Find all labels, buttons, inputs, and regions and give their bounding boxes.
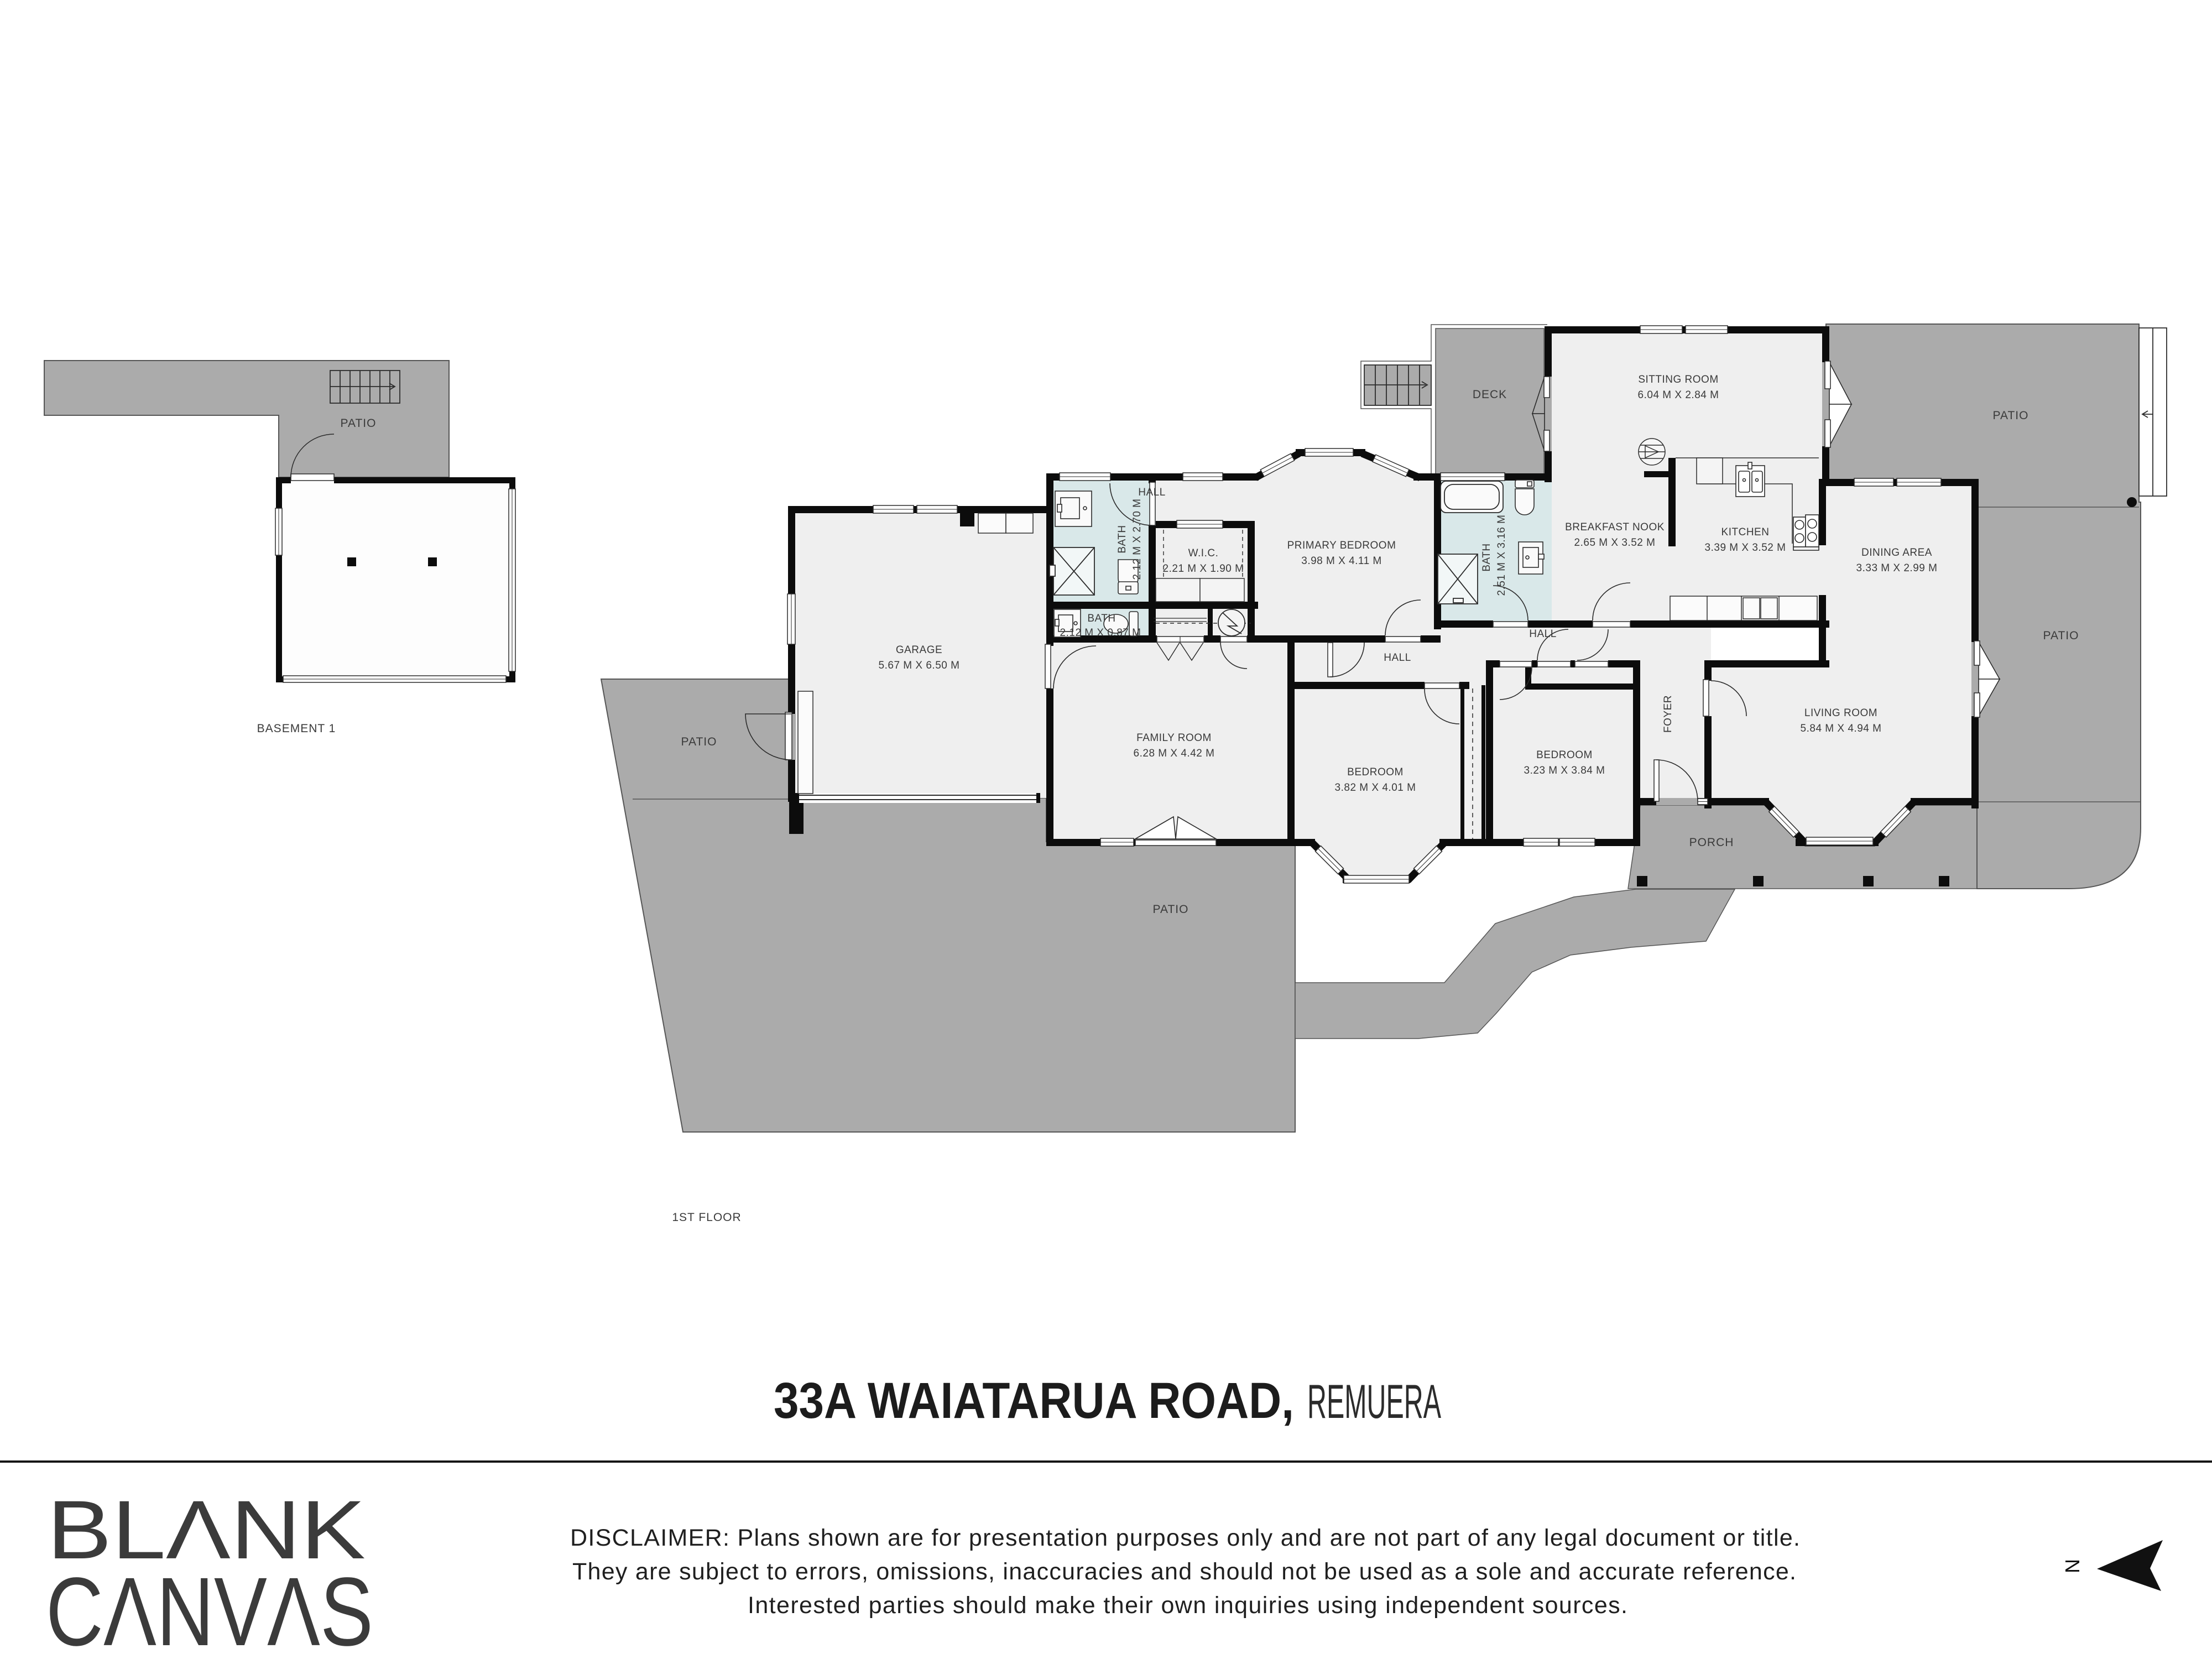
svg-text:CΛNVΛS: CΛNVΛS: [46, 1558, 373, 1659]
svg-text:BATH: BATH: [1481, 543, 1493, 571]
svg-text:2.21 M X 1.90 M: 2.21 M X 1.90 M: [1163, 563, 1244, 575]
svg-text:5.67 M X 6.50 M: 5.67 M X 6.50 M: [879, 660, 960, 671]
svg-text:LIVING ROOM: LIVING ROOM: [1804, 707, 1877, 719]
svg-text:6.04 M X 2.84 M: 6.04 M X 2.84 M: [1638, 389, 1719, 401]
svg-text:BEDROOM: BEDROOM: [1347, 766, 1404, 778]
svg-text:REMUERA: REMUERA: [1307, 1375, 1441, 1428]
svg-text:BASEMENT 1: BASEMENT 1: [257, 722, 336, 735]
svg-text:3.33 M X 2.99 M: 3.33 M X 2.99 M: [1856, 562, 1938, 574]
svg-text:They are subject to errors, om: They are subject to errors, omissions, i…: [572, 1558, 1796, 1585]
svg-text:PATIO: PATIO: [1153, 903, 1189, 916]
svg-text:PATIO: PATIO: [2043, 629, 2079, 642]
svg-text:FAMILY ROOM: FAMILY ROOM: [1136, 732, 1212, 744]
svg-text:HALL: HALL: [1138, 487, 1166, 498]
svg-text:BEDROOM: BEDROOM: [1536, 749, 1593, 761]
svg-text:2.65 M X 3.52 M: 2.65 M X 3.52 M: [1574, 537, 1656, 549]
svg-text:33A WAIATARUA ROAD,: 33A WAIATARUA ROAD,: [774, 1373, 1294, 1429]
svg-text:HALL: HALL: [1384, 652, 1411, 664]
svg-text:5.84 M X 4.94 M: 5.84 M X 4.94 M: [1801, 723, 1882, 734]
svg-text:3.82 M X 4.01 M: 3.82 M X 4.01 M: [1335, 782, 1416, 794]
svg-text:PATIO: PATIO: [1993, 409, 2029, 422]
svg-text:W.I.C.: W.I.C.: [1188, 547, 1219, 559]
svg-text:DECK: DECK: [1473, 388, 1507, 401]
svg-text:PATIO: PATIO: [681, 735, 717, 748]
svg-text:DINING AREA: DINING AREA: [1861, 547, 1932, 559]
svg-text:PORCH: PORCH: [1689, 836, 1734, 849]
svg-text:6.28 M X 4.42 M: 6.28 M X 4.42 M: [1134, 748, 1215, 759]
svg-text:SITTING ROOM: SITTING ROOM: [1638, 374, 1718, 385]
svg-text:BATH: BATH: [1087, 613, 1115, 624]
svg-text:KITCHEN: KITCHEN: [1721, 526, 1770, 538]
svg-text:BREAKFAST NOOK: BREAKFAST NOOK: [1565, 521, 1665, 533]
svg-text:PATIO: PATIO: [341, 417, 377, 430]
svg-text:3.23 M X 3.84 M: 3.23 M X 3.84 M: [1524, 765, 1605, 776]
svg-text:2.51 M X 3.16 M: 2.51 M X 3.16 M: [1496, 515, 1507, 596]
svg-text:2.12 M X 0.87 M: 2.12 M X 0.87 M: [1060, 627, 1141, 639]
svg-text:DISCLAIMER: Plans shown are fo: DISCLAIMER: Plans shown are for presenta…: [570, 1525, 1800, 1551]
svg-text:BATH: BATH: [1117, 525, 1128, 553]
svg-text:PRIMARY BEDROOM: PRIMARY BEDROOM: [1287, 540, 1396, 551]
svg-text:HALL: HALL: [1529, 628, 1557, 640]
svg-text:FOYER: FOYER: [1662, 695, 1674, 733]
svg-text:3.98 M X 4.11 M: 3.98 M X 4.11 M: [1301, 555, 1382, 567]
svg-text:GARAGE: GARAGE: [896, 644, 942, 656]
svg-text:1ST FLOOR: 1ST FLOOR: [672, 1211, 741, 1224]
svg-text:3.39 M X 3.52 M: 3.39 M X 3.52 M: [1705, 542, 1786, 554]
svg-text:2.12 M X 2.70 M: 2.12 M X 2.70 M: [1131, 499, 1143, 580]
svg-text:N: N: [2061, 1559, 2084, 1573]
svg-text:Interested parties should make: Interested parties should make their own…: [748, 1592, 1627, 1619]
